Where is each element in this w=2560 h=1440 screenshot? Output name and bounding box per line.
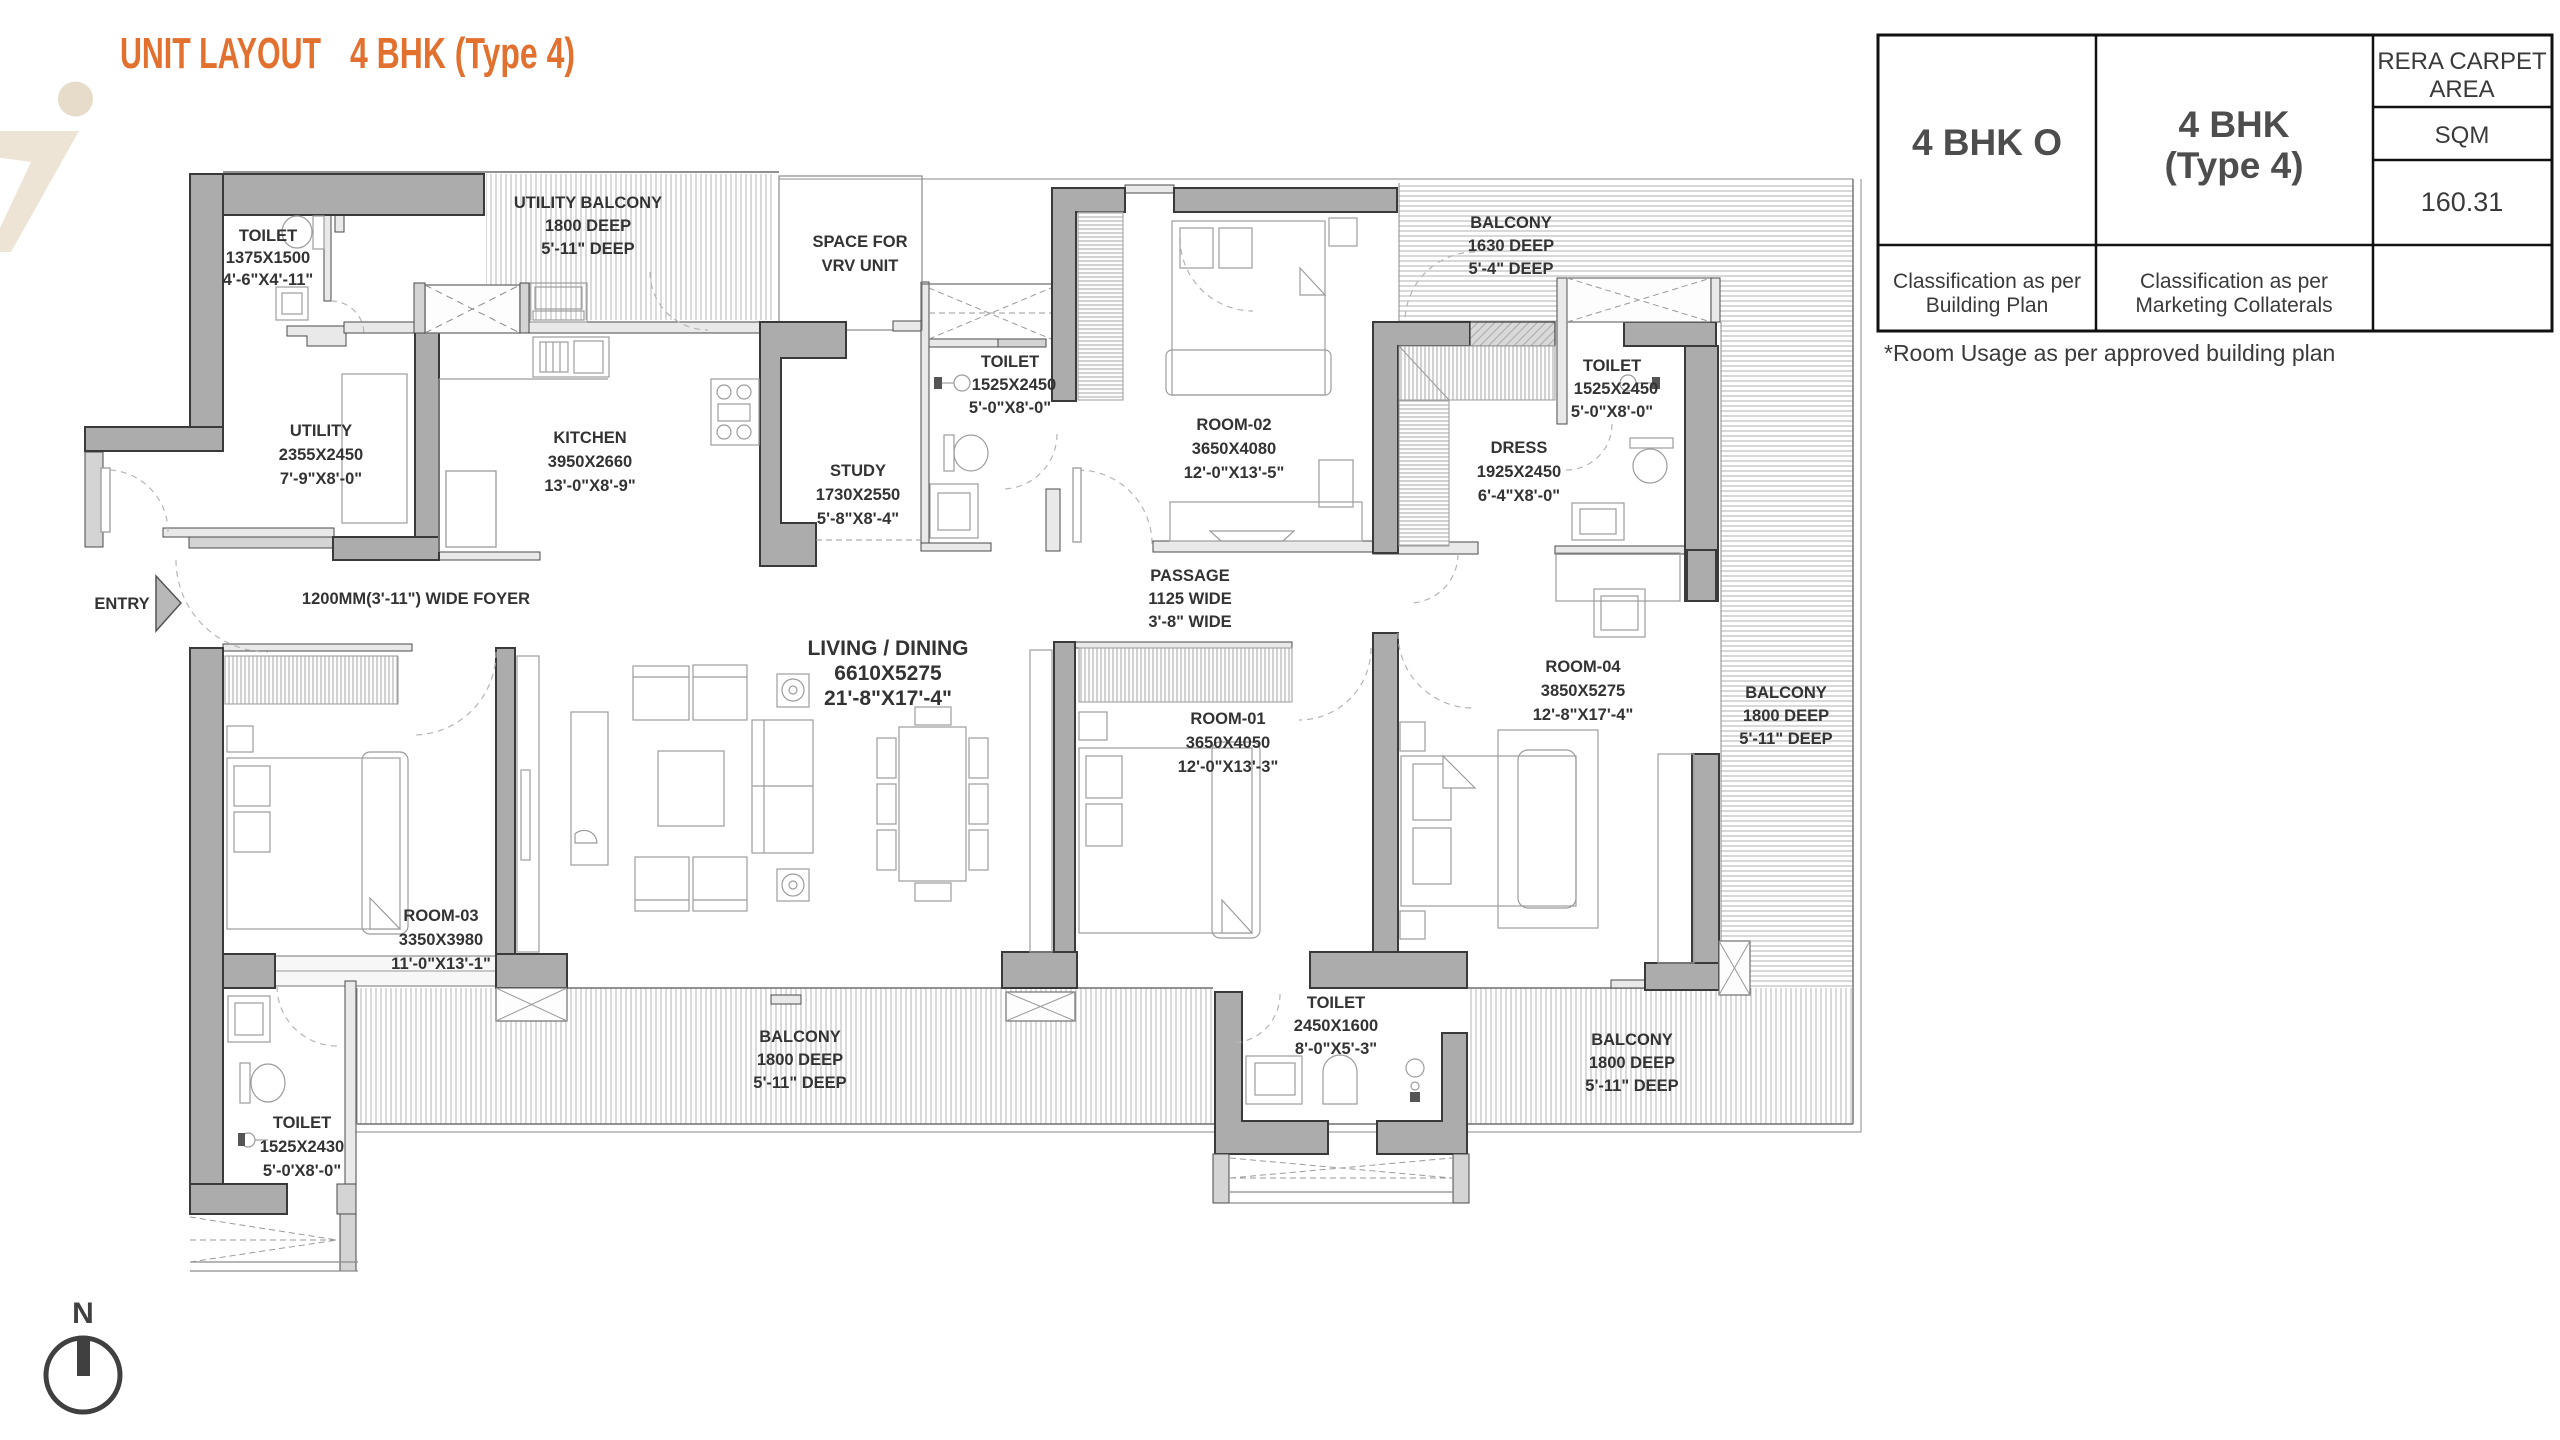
svg-text:SQM: SQM	[2435, 122, 2490, 149]
svg-text:AREA: AREA	[2429, 76, 2494, 103]
svg-text:3'-8" WIDE: 3'-8" WIDE	[1148, 613, 1231, 631]
svg-text:TOILET: TOILET	[239, 227, 297, 245]
svg-text:5'-0'X8'-0": 5'-0'X8'-0"	[263, 1162, 341, 1180]
svg-text:12'-8"X17'-4": 12'-8"X17'-4"	[1533, 706, 1634, 724]
svg-text:13'-0"X8'-9": 13'-0"X8'-9"	[544, 477, 635, 495]
svg-text:5'-11" DEEP: 5'-11" DEEP	[1739, 730, 1832, 748]
svg-text:2355X2450: 2355X2450	[279, 446, 363, 464]
svg-text:BALCONY: BALCONY	[1591, 1031, 1673, 1049]
svg-text:5'-11" DEEP: 5'-11" DEEP	[753, 1074, 846, 1092]
svg-text:1800 DEEP: 1800 DEEP	[757, 1051, 843, 1069]
svg-text:5'-0"X8'-0": 5'-0"X8'-0"	[1571, 403, 1653, 421]
svg-text:4 BHK: 4 BHK	[2178, 104, 2289, 145]
svg-text:6'-4"X8'-0": 6'-4"X8'-0"	[1478, 487, 1560, 505]
svg-text:Building Plan: Building Plan	[1926, 294, 2049, 317]
svg-text:3650X4050: 3650X4050	[1186, 734, 1270, 752]
svg-text:1375X1500: 1375X1500	[226, 249, 310, 267]
svg-text:3350X3980: 3350X3980	[399, 931, 483, 949]
svg-text:Classification as per: Classification as per	[1893, 270, 2081, 293]
svg-text:TOILET: TOILET	[273, 1114, 331, 1132]
svg-text:1925X2450: 1925X2450	[1477, 463, 1561, 481]
svg-text:UNIT LAYOUT: UNIT LAYOUT	[120, 29, 321, 78]
svg-text:ENTRY: ENTRY	[94, 595, 149, 613]
svg-text:5'-11" DEEP: 5'-11" DEEP	[1585, 1077, 1678, 1095]
svg-text:BALCONY: BALCONY	[1745, 684, 1827, 702]
svg-text:5'-11" DEEP: 5'-11" DEEP	[541, 240, 634, 258]
svg-text:1730X2550: 1730X2550	[816, 486, 900, 504]
svg-text:TOILET: TOILET	[1307, 994, 1365, 1012]
svg-text:TOILET: TOILET	[981, 353, 1039, 371]
svg-text:3950X2660: 3950X2660	[548, 453, 632, 471]
svg-text:ROOM-01: ROOM-01	[1190, 710, 1265, 728]
svg-text:4 BHK O: 4 BHK O	[1912, 122, 2062, 163]
svg-text:ROOM-03: ROOM-03	[403, 907, 478, 925]
svg-text:ROOM-04: ROOM-04	[1545, 658, 1621, 676]
svg-text:1525X2450: 1525X2450	[972, 376, 1056, 394]
svg-text:4 BHK (Type 4): 4 BHK (Type 4)	[350, 29, 575, 78]
svg-text:1630 DEEP: 1630 DEEP	[1468, 237, 1554, 255]
svg-text:1800 DEEP: 1800 DEEP	[1589, 1054, 1675, 1072]
svg-text:5'-8"X8'-4": 5'-8"X8'-4"	[817, 510, 899, 528]
svg-text:RERA CARPET: RERA CARPET	[2377, 48, 2547, 75]
svg-text:Marketing Collaterals: Marketing Collaterals	[2135, 294, 2332, 317]
svg-text:ROOM-02: ROOM-02	[1196, 416, 1271, 434]
svg-text:12'-0"X13'-3": 12'-0"X13'-3"	[1178, 758, 1279, 776]
svg-text:PASSAGE: PASSAGE	[1150, 567, 1229, 585]
svg-text:SPACE FOR: SPACE FOR	[812, 233, 907, 251]
svg-text:UTILITY: UTILITY	[290, 422, 352, 440]
svg-text:3650X4080: 3650X4080	[1192, 440, 1276, 458]
svg-text:1125 WIDE: 1125 WIDE	[1148, 590, 1231, 608]
svg-text:1200MM(3'-11") WIDE FOYER: 1200MM(3'-11") WIDE FOYER	[302, 590, 530, 608]
svg-text:Classification as per: Classification as per	[2140, 270, 2328, 293]
svg-text:*Room Usage as per approved bu: *Room Usage as per approved building pla…	[1884, 340, 2335, 366]
svg-text:4'-6"X4'-11": 4'-6"X4'-11"	[223, 271, 313, 289]
svg-text:21'-8"X17'-4": 21'-8"X17'-4"	[824, 687, 952, 710]
svg-text:DRESS: DRESS	[1491, 439, 1548, 457]
svg-text:1800 DEEP: 1800 DEEP	[1743, 707, 1829, 725]
svg-text:12'-0"X13'-5": 12'-0"X13'-5"	[1184, 464, 1285, 482]
svg-text:1525X2450: 1525X2450	[1574, 380, 1658, 398]
svg-text:11'-0"X13'-1": 11'-0"X13'-1"	[391, 955, 491, 973]
svg-text:8'-0"X5'-3": 8'-0"X5'-3"	[1295, 1040, 1377, 1058]
svg-text:2450X1600: 2450X1600	[1294, 1017, 1378, 1035]
svg-text:VRV UNIT: VRV UNIT	[822, 257, 899, 275]
svg-text:1525X2430: 1525X2430	[260, 1138, 344, 1156]
svg-text:BALCONY: BALCONY	[1470, 214, 1552, 232]
svg-text:(Type 4): (Type 4)	[2164, 145, 2303, 186]
svg-text:6610X5275: 6610X5275	[834, 662, 942, 685]
svg-text:5'-0"X8'-0": 5'-0"X8'-0"	[969, 399, 1051, 417]
svg-text:KITCHEN: KITCHEN	[553, 429, 626, 447]
svg-text:TOILET: TOILET	[1583, 357, 1641, 375]
svg-text:160.31: 160.31	[2421, 187, 2504, 217]
svg-text:UTILITY BALCONY: UTILITY BALCONY	[514, 194, 662, 212]
svg-text:7'-9"X8'-0": 7'-9"X8'-0"	[280, 470, 362, 488]
svg-text:LIVING / DINING: LIVING / DINING	[807, 637, 968, 660]
svg-text:STUDY: STUDY	[830, 462, 886, 480]
svg-text:BALCONY: BALCONY	[759, 1028, 841, 1046]
svg-text:N: N	[72, 1297, 94, 1330]
svg-text:1800 DEEP: 1800 DEEP	[545, 217, 631, 235]
svg-text:5'-4" DEEP: 5'-4" DEEP	[1468, 260, 1553, 278]
svg-text:3850X5275: 3850X5275	[1541, 682, 1625, 700]
